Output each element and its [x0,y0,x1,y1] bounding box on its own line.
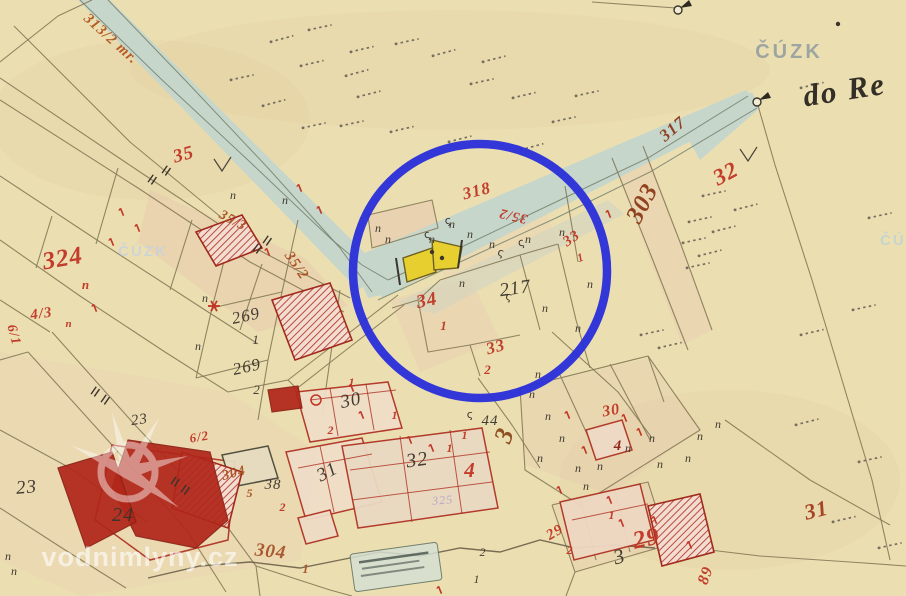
parcel-number-red: 304 [253,539,288,563]
parcel-number-red: n [65,318,72,330]
parcel-number-red: 2 [327,423,335,437]
parcel-number-black: 1 [252,332,260,347]
fence-mark-n: n [597,459,603,473]
fence-mark-n: n [11,564,17,578]
fence-mark-n: n [715,417,721,431]
parcel-number-faint: 325 [431,492,454,508]
parcel-number-red: 2 [279,500,287,514]
parcel-number-red: 1 [447,441,454,455]
parcel-number-red: 4/3 [28,305,53,324]
survey-point-circle [674,6,682,14]
watermark-cuzk: ČÚZK [880,231,906,249]
fence-mark-n: n [575,461,581,475]
parcel-number-red: 4 [463,458,476,482]
parcel-number-black: 23 [130,411,149,429]
fence-mark-n: n [545,409,551,423]
parcel-number-black: 217 [498,276,533,301]
parcel-number-red: 1 [462,428,469,442]
fence-mark-n: n [489,237,495,251]
fence-mark-n: n [5,549,11,563]
fence-mark-n: n [230,188,236,202]
parcel-number-black: 2 [253,382,261,397]
parcel-number-black: 38 [264,477,282,493]
parcel-number-black: 44 [482,413,499,429]
parcel-number-red: n [82,277,90,292]
parcel-number-black: 30 [337,388,363,413]
fence-mark-n: n [583,479,589,493]
fence-mark-n: n [697,429,703,443]
parcel-number-black: 23 [15,476,38,499]
fence-mark-n: n [649,431,655,445]
parcel-number-black: 1 [474,572,481,586]
watermark-cuzk: ČÚZK [118,242,168,260]
parcel-number-black: 32 [404,448,430,473]
parcel-number-red: 1 [392,408,399,422]
fence-mark-n: n [537,451,543,465]
parcel-number-black: 24 [112,504,134,526]
fence-mark-n: n [575,321,581,335]
fence-mark-n: n [685,451,691,465]
fence-mark-n: n [195,339,201,353]
fence-mark-n: n [625,441,631,455]
fence-mark-n: n [282,193,288,207]
parcel-number-red: 4 [613,438,623,454]
watermark-cuzk: ČÚZK [755,39,823,63]
parcel-number-red: 1 [302,561,310,576]
fence-mark-n: n [542,301,548,315]
ink-flourish: ς [445,214,451,227]
fence-mark-n: n [459,276,465,290]
ink-flourish: ς [467,408,473,421]
parcel-number-red: 5 [247,486,254,500]
parcel-number-red: 1 [609,508,616,522]
fence-mark-n: n [525,232,531,246]
fence-mark-n: n [657,457,663,471]
parcel-number-red: 2 [566,543,574,557]
fence-mark-n: n [385,232,391,246]
fence-mark-n: n [559,431,565,445]
parcel-number-red: 1 [349,375,356,389]
parcel-number-red: 30 [600,401,622,421]
cadastral-map[interactable]: nnnnnnnnnnnnnnnnnnnnnnnnnnnnnnnnςςςςςς31… [0,0,906,596]
fence-mark-n: n [467,227,473,241]
ink-dot [836,22,840,26]
parcel-number-red: 29 [629,523,662,555]
parcel-number-red: 34 [413,288,439,313]
parcel-number-red: 1 [440,318,448,333]
fence-mark-n: n [202,291,208,305]
fence-mark-n: n [587,277,593,291]
ink-dot [440,256,444,260]
fence-mark-n: n [375,221,381,235]
survey-point-circle [753,98,761,106]
parcel-number-red: 2 [483,362,492,377]
building-solid [268,386,302,412]
parcel-number-black: 2 [480,545,487,559]
watermark-vodnimlyny: vodnimlyny.cz [41,542,238,572]
ink-dot [430,250,434,254]
map-viewport: nnnnnnnnnnnnnnnnnnnnnnnnnnnnnnnnςςςςςς31… [0,0,906,596]
